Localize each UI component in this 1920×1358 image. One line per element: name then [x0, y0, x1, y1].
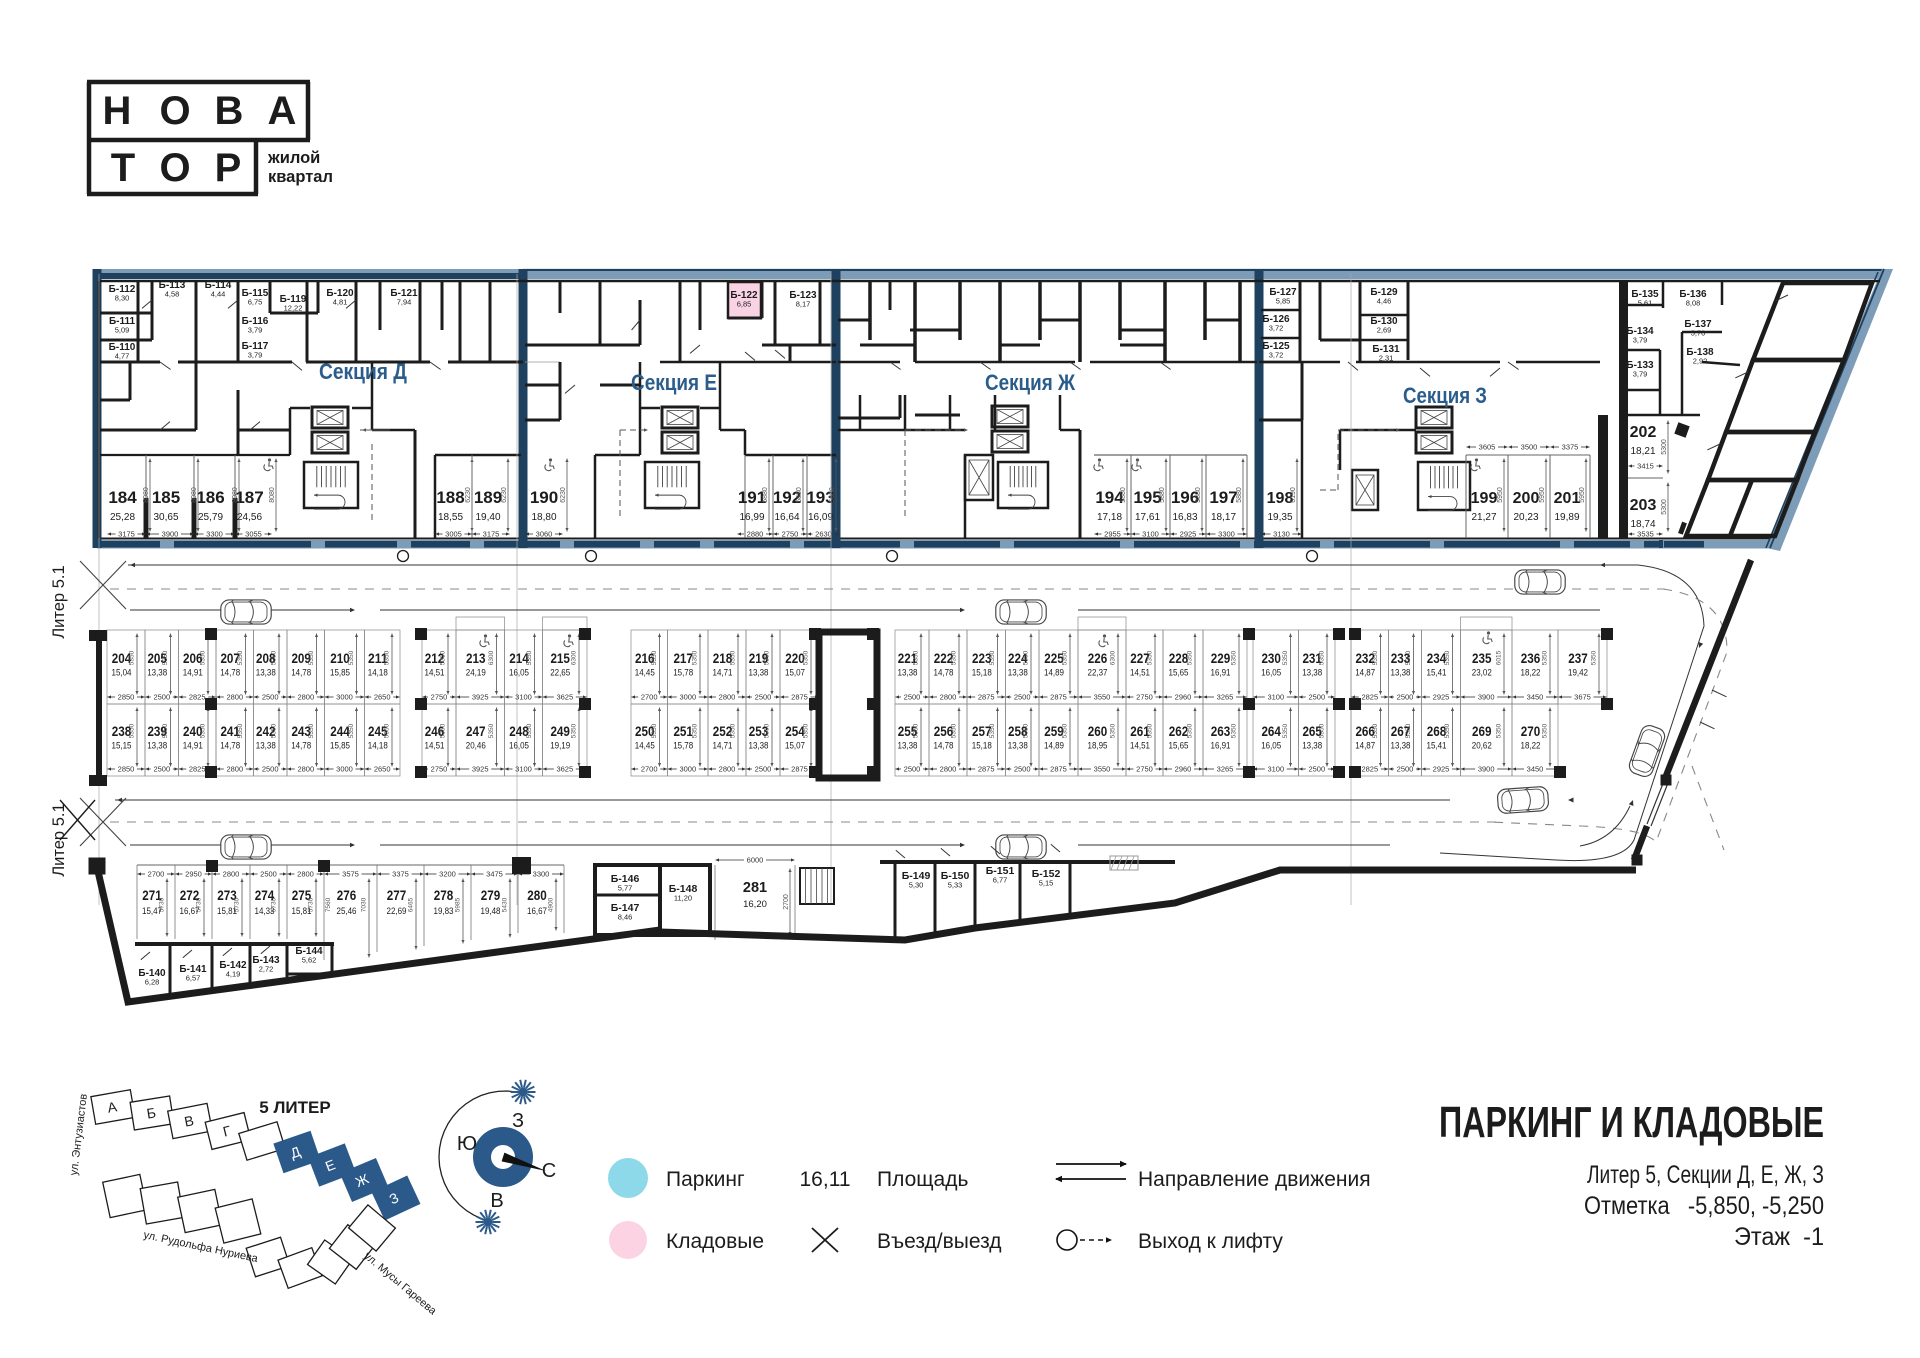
svg-text:14,18: 14,18: [368, 741, 388, 751]
svg-text:13,38: 13,38: [898, 668, 918, 678]
svg-text:14,91: 14,91: [183, 741, 203, 751]
svg-text:5350: 5350: [989, 723, 996, 738]
svg-text:2500: 2500: [1014, 693, 1031, 702]
svg-text:2500: 2500: [262, 765, 279, 774]
svg-text:3605: 3605: [1479, 443, 1496, 452]
svg-text:5350: 5350: [384, 650, 391, 665]
svg-text:5350: 5350: [237, 650, 244, 665]
svg-text:2650: 2650: [374, 765, 391, 774]
svg-text:2700: 2700: [783, 894, 790, 910]
svg-text:6465: 6465: [408, 897, 415, 912]
svg-text:6190: 6190: [1290, 487, 1297, 503]
svg-text:Направление движения: Направление движения: [1138, 1168, 1371, 1191]
svg-text:8,17: 8,17: [796, 300, 811, 309]
svg-text:2700: 2700: [641, 693, 658, 702]
svg-text:5350: 5350: [1231, 650, 1238, 665]
svg-text:5350: 5350: [730, 723, 737, 738]
svg-text:4900: 4900: [548, 897, 555, 912]
svg-text:6,28: 6,28: [145, 978, 160, 987]
svg-text:185: 185: [152, 488, 180, 507]
svg-text:3100: 3100: [1142, 530, 1159, 539]
svg-text:264: 264: [1261, 724, 1281, 739]
svg-text:3130: 3130: [1273, 530, 1290, 539]
svg-text:3100: 3100: [1267, 693, 1284, 702]
svg-text:5350: 5350: [1062, 723, 1069, 738]
svg-text:14,71: 14,71: [713, 741, 733, 751]
svg-text:5350: 5350: [1282, 723, 1289, 738]
svg-text:5350: 5350: [271, 650, 278, 665]
svg-text:217: 217: [673, 651, 693, 666]
svg-text:260: 260: [1088, 724, 1108, 739]
svg-text:19,19: 19,19: [550, 741, 570, 751]
svg-text:16,91: 16,91: [1211, 741, 1231, 751]
svg-text:5950: 5950: [1539, 487, 1546, 503]
svg-text:14,51: 14,51: [425, 668, 445, 678]
svg-text:2825: 2825: [189, 693, 206, 702]
svg-text:2800: 2800: [719, 693, 736, 702]
svg-text:16,11: 16,11: [800, 1168, 851, 1191]
svg-text:2750: 2750: [431, 693, 448, 702]
svg-text:13,38: 13,38: [749, 668, 769, 678]
svg-text:269: 269: [1472, 724, 1492, 739]
svg-text:14,51: 14,51: [1130, 668, 1150, 678]
svg-text:3375: 3375: [1562, 443, 1579, 452]
svg-text:5 ЛИТЕР: 5 ЛИТЕР: [259, 1098, 330, 1117]
svg-text:19,35: 19,35: [1267, 512, 1292, 523]
svg-text:18,21: 18,21: [1630, 446, 1655, 457]
svg-text:2,92: 2,92: [1693, 357, 1708, 366]
svg-text:5350: 5350: [348, 723, 355, 738]
svg-text:5430: 5430: [502, 897, 509, 912]
svg-text:5350: 5350: [1023, 723, 1030, 738]
svg-text:5350: 5350: [200, 650, 207, 665]
svg-text:19,48: 19,48: [481, 906, 501, 916]
svg-text:201: 201: [1554, 490, 1581, 507]
svg-text:жилой: жилой: [267, 149, 320, 167]
svg-text:2925: 2925: [1433, 765, 1450, 774]
svg-text:13,38: 13,38: [147, 741, 167, 751]
svg-text:2750: 2750: [1136, 765, 1153, 774]
svg-text:3055: 3055: [245, 530, 262, 539]
svg-text:3375: 3375: [392, 870, 409, 879]
svg-text:2960: 2960: [1175, 765, 1192, 774]
svg-text:247: 247: [466, 724, 486, 739]
svg-text:25,79: 25,79: [198, 512, 223, 523]
svg-text:5350: 5350: [271, 723, 278, 738]
svg-text:251: 251: [673, 724, 693, 739]
svg-text:18,74: 18,74: [1630, 519, 1655, 530]
svg-text:2875: 2875: [1050, 765, 1067, 774]
svg-text:3060: 3060: [536, 530, 553, 539]
svg-text:189: 189: [474, 488, 502, 507]
svg-text:15,85: 15,85: [330, 668, 350, 678]
svg-text:2500: 2500: [904, 693, 921, 702]
svg-text:С: С: [542, 1160, 556, 1182]
svg-text:2750: 2750: [782, 530, 799, 539]
svg-text:3900: 3900: [1478, 765, 1495, 774]
svg-text:20,62: 20,62: [1472, 741, 1492, 751]
svg-text:5350: 5350: [1405, 723, 1412, 738]
svg-text:270: 270: [1521, 724, 1541, 739]
svg-text:5350: 5350: [1147, 723, 1154, 738]
svg-text:5350: 5350: [1062, 650, 1069, 665]
svg-text:3415: 3415: [1637, 462, 1654, 471]
svg-text:3000: 3000: [336, 765, 353, 774]
svg-text:25,46: 25,46: [337, 906, 357, 916]
svg-text:21,27: 21,27: [1471, 512, 1496, 523]
svg-text:5950: 5950: [1497, 487, 1504, 503]
svg-text:5350: 5350: [1231, 723, 1238, 738]
svg-text:3900: 3900: [162, 530, 179, 539]
svg-text:8080: 8080: [191, 487, 198, 503]
svg-text:5,85: 5,85: [1276, 297, 1291, 306]
svg-text:5350: 5350: [764, 723, 771, 738]
svg-text:5350: 5350: [1444, 650, 1451, 665]
svg-text:5350: 5350: [989, 650, 996, 665]
svg-text:5350: 5350: [237, 723, 244, 738]
svg-text:5350: 5350: [951, 723, 958, 738]
svg-text:2,72: 2,72: [259, 965, 274, 974]
svg-text:2750: 2750: [431, 765, 448, 774]
svg-text:2500: 2500: [1014, 765, 1031, 774]
svg-text:20,46: 20,46: [466, 741, 486, 751]
svg-text:5880: 5880: [1120, 487, 1127, 503]
svg-text:3300: 3300: [1218, 530, 1235, 539]
svg-text:14,78: 14,78: [934, 668, 954, 678]
svg-text:5350: 5350: [803, 723, 810, 738]
svg-text:14,78: 14,78: [291, 668, 311, 678]
svg-text:237: 237: [1568, 651, 1588, 666]
svg-text:5350: 5350: [1444, 723, 1451, 738]
svg-text:5,70: 5,70: [1691, 329, 1706, 338]
svg-text:5350: 5350: [1542, 650, 1549, 665]
svg-text:2955: 2955: [1104, 530, 1121, 539]
svg-text:184: 184: [108, 488, 137, 507]
svg-text:14,89: 14,89: [1044, 741, 1064, 751]
svg-text:3265: 3265: [1217, 693, 1234, 702]
svg-text:3175: 3175: [118, 530, 135, 539]
svg-text:2825: 2825: [189, 765, 206, 774]
svg-text:5350: 5350: [162, 723, 169, 738]
svg-text:15,15: 15,15: [112, 741, 132, 751]
svg-text:19,83: 19,83: [434, 906, 454, 916]
svg-text:18,17: 18,17: [1211, 512, 1236, 523]
svg-text:5350: 5350: [913, 723, 920, 738]
svg-text:квартал: квартал: [268, 168, 333, 186]
svg-text:5,15: 5,15: [1039, 879, 1054, 888]
svg-text:13,38: 13,38: [1008, 668, 1028, 678]
svg-text:24,19: 24,19: [466, 668, 486, 678]
svg-text:3,79: 3,79: [248, 351, 263, 360]
svg-text:7,94: 7,94: [397, 298, 412, 307]
svg-text:2500: 2500: [262, 693, 279, 702]
svg-text:15,18: 15,18: [972, 741, 992, 751]
svg-text:195: 195: [1133, 488, 1161, 507]
svg-text:2850: 2850: [118, 693, 135, 702]
svg-text:188: 188: [436, 488, 464, 507]
svg-text:В: В: [490, 1190, 503, 1212]
svg-text:3265: 3265: [1217, 765, 1234, 774]
svg-text:Отметка -5,850, -5,250: Отметка -5,850, -5,250: [1584, 1192, 1824, 1220]
svg-text:13,38: 13,38: [1008, 741, 1028, 751]
svg-text:2800: 2800: [297, 765, 314, 774]
svg-text:3300: 3300: [206, 530, 223, 539]
svg-text:2875: 2875: [978, 765, 995, 774]
svg-text:236: 236: [1521, 651, 1541, 666]
svg-text:13,38: 13,38: [749, 741, 769, 751]
svg-text:5350: 5350: [651, 650, 658, 665]
svg-text:5350: 5350: [1187, 650, 1194, 665]
svg-text:Литер 5.1: Литер 5.1: [50, 803, 68, 876]
svg-text:8,08: 8,08: [1686, 299, 1701, 308]
svg-text:2500: 2500: [1308, 693, 1325, 702]
svg-text:2800: 2800: [719, 765, 736, 774]
svg-text:5,61: 5,61: [1638, 299, 1653, 308]
svg-text:3100: 3100: [515, 693, 532, 702]
svg-text:3475: 3475: [486, 870, 503, 879]
svg-text:278: 278: [434, 888, 454, 903]
svg-text:13,38: 13,38: [1302, 668, 1322, 678]
svg-text:277: 277: [387, 888, 407, 903]
svg-text:5350: 5350: [1023, 650, 1030, 665]
svg-text:19,89: 19,89: [1554, 512, 1579, 523]
svg-text:5880: 5880: [1159, 487, 1166, 503]
svg-text:2925: 2925: [1433, 693, 1450, 702]
svg-text:13,38: 13,38: [256, 741, 276, 751]
svg-text:2825: 2825: [1361, 765, 1378, 774]
svg-text:2700: 2700: [641, 765, 658, 774]
svg-text:3,72: 3,72: [1269, 351, 1284, 360]
svg-text:Въезд/выезд: Въезд/выезд: [877, 1230, 1002, 1253]
svg-text:16,09: 16,09: [808, 512, 833, 523]
svg-text:5730: 5730: [234, 897, 241, 912]
svg-text:3,79: 3,79: [248, 326, 263, 335]
svg-text:5,62: 5,62: [302, 956, 317, 965]
svg-text:3000: 3000: [336, 693, 353, 702]
svg-text:5350: 5350: [1110, 723, 1117, 738]
svg-text:О: О: [159, 89, 190, 133]
svg-text:5350: 5350: [348, 650, 355, 665]
svg-text:15,65: 15,65: [1169, 741, 1189, 751]
svg-text:22,69: 22,69: [387, 906, 407, 916]
svg-text:14,78: 14,78: [220, 668, 240, 678]
svg-text:5730: 5730: [308, 897, 315, 912]
svg-text:5350: 5350: [162, 650, 169, 665]
svg-text:5,09: 5,09: [115, 326, 130, 335]
svg-text:5300: 5300: [1661, 439, 1668, 455]
svg-text:200: 200: [1513, 490, 1540, 507]
svg-text:3100: 3100: [1267, 765, 1284, 774]
svg-text:15,41: 15,41: [1427, 741, 1447, 751]
svg-text:16,83: 16,83: [1172, 512, 1197, 523]
svg-text:5350: 5350: [200, 723, 207, 738]
svg-text:5730: 5730: [196, 897, 203, 912]
svg-text:213: 213: [466, 651, 486, 666]
svg-text:3625: 3625: [556, 693, 573, 702]
svg-text:3535: 3535: [1637, 530, 1654, 539]
svg-text:230: 230: [1261, 651, 1281, 666]
svg-text:30,65: 30,65: [153, 512, 178, 523]
svg-text:Литер 5.1: Литер 5.1: [50, 565, 68, 638]
svg-text:13,38: 13,38: [898, 741, 918, 751]
svg-text:13,38: 13,38: [1302, 741, 1322, 751]
svg-text:15,78: 15,78: [673, 741, 693, 751]
svg-text:5350: 5350: [1542, 723, 1549, 738]
svg-text:2800: 2800: [226, 693, 243, 702]
svg-text:2825: 2825: [1361, 693, 1378, 702]
svg-text:6230: 6230: [465, 487, 472, 503]
svg-text:2800: 2800: [226, 765, 243, 774]
svg-text:5350: 5350: [1319, 723, 1326, 738]
svg-text:2500: 2500: [1308, 765, 1325, 774]
svg-text:19,42: 19,42: [1568, 668, 1588, 678]
svg-text:5350: 5350: [913, 650, 920, 665]
svg-text:16,91: 16,91: [1211, 668, 1231, 678]
svg-text:197: 197: [1209, 488, 1237, 507]
svg-text:14,78: 14,78: [934, 741, 954, 751]
svg-text:2750: 2750: [1136, 693, 1153, 702]
svg-text:22,65: 22,65: [550, 668, 570, 678]
svg-text:6300: 6300: [488, 650, 495, 665]
svg-text:Н: Н: [103, 89, 132, 133]
svg-text:276: 276: [337, 888, 357, 903]
svg-text:5350: 5350: [129, 723, 136, 738]
svg-text:14,89: 14,89: [1044, 668, 1064, 678]
svg-text:14,87: 14,87: [1355, 741, 1375, 751]
svg-text:15,07: 15,07: [785, 741, 805, 751]
svg-text:5,30: 5,30: [909, 881, 924, 890]
svg-text:17,18: 17,18: [1097, 512, 1122, 523]
svg-text:3005: 3005: [445, 530, 462, 539]
svg-text:5350: 5350: [440, 723, 447, 738]
svg-text:14,51: 14,51: [1130, 741, 1150, 751]
svg-text:2800: 2800: [223, 870, 240, 879]
svg-text:8,46: 8,46: [618, 913, 633, 922]
svg-text:5880: 5880: [829, 487, 836, 503]
svg-text:202: 202: [1630, 424, 1657, 441]
svg-text:14,18: 14,18: [368, 668, 388, 678]
svg-text:19,40: 19,40: [475, 512, 500, 523]
svg-text:6230: 6230: [560, 487, 567, 503]
svg-text:18,22: 18,22: [1521, 741, 1541, 751]
svg-text:Ю: Ю: [457, 1133, 477, 1155]
svg-text:16,67: 16,67: [527, 906, 547, 916]
svg-text:11,20: 11,20: [674, 894, 692, 903]
svg-text:Секция Ж: Секция Ж: [985, 370, 1075, 395]
svg-text:12,22: 12,22: [284, 304, 303, 313]
svg-text:5350: 5350: [526, 650, 533, 665]
svg-text:5730: 5730: [271, 897, 278, 912]
svg-text:5350: 5350: [1147, 650, 1154, 665]
svg-text:187: 187: [235, 488, 263, 507]
svg-text:5350: 5350: [692, 723, 699, 738]
svg-text:5880: 5880: [1195, 487, 1202, 503]
svg-text:5350: 5350: [951, 650, 958, 665]
svg-text:5880: 5880: [796, 487, 803, 503]
svg-text:2875: 2875: [791, 765, 808, 774]
svg-text:5300: 5300: [1661, 499, 1668, 515]
svg-text:2500: 2500: [755, 693, 772, 702]
svg-text:3575: 3575: [342, 870, 359, 879]
svg-text:З: З: [512, 1110, 524, 1132]
svg-text:3675: 3675: [1574, 693, 1591, 702]
svg-text:16,05: 16,05: [1261, 741, 1281, 751]
svg-text:262: 262: [1169, 724, 1189, 739]
svg-text:16,05: 16,05: [509, 668, 529, 678]
svg-text:210: 210: [330, 651, 350, 666]
svg-text:5350: 5350: [571, 723, 578, 738]
svg-text:5350: 5350: [129, 650, 136, 665]
svg-text:7560: 7560: [325, 897, 332, 912]
svg-text:5350: 5350: [1372, 650, 1379, 665]
svg-text:17,61: 17,61: [1135, 512, 1160, 523]
svg-text:4,58: 4,58: [165, 290, 180, 299]
svg-text:А: А: [268, 89, 297, 133]
svg-text:В: В: [215, 89, 244, 133]
svg-text:6,85: 6,85: [737, 300, 752, 309]
svg-text:2800: 2800: [940, 765, 957, 774]
svg-text:13,38: 13,38: [1391, 741, 1411, 751]
svg-text:16,99: 16,99: [739, 512, 764, 523]
svg-text:6015: 6015: [1496, 650, 1503, 665]
svg-text:235: 235: [1472, 651, 1492, 666]
svg-text:6230: 6230: [501, 487, 508, 503]
svg-text:5350: 5350: [730, 650, 737, 665]
svg-text:14,45: 14,45: [635, 741, 655, 751]
svg-text:6300: 6300: [1110, 650, 1117, 665]
svg-text:5350: 5350: [440, 650, 447, 665]
svg-text:5350: 5350: [803, 650, 810, 665]
svg-text:Этаж -1: Этаж -1: [1734, 1223, 1824, 1251]
svg-text:5350: 5350: [384, 723, 391, 738]
svg-text:5350: 5350: [764, 650, 771, 665]
svg-text:3500: 3500: [1521, 443, 1538, 452]
svg-text:Секция Д: Секция Д: [319, 359, 407, 384]
svg-text:5350: 5350: [1282, 650, 1289, 665]
svg-text:5880: 5880: [1236, 487, 1243, 503]
svg-text:249: 249: [550, 724, 570, 739]
svg-text:18,22: 18,22: [1521, 668, 1541, 678]
svg-text:5350: 5350: [308, 650, 315, 665]
svg-text:3925: 3925: [472, 765, 489, 774]
svg-text:18,55: 18,55: [438, 512, 463, 523]
svg-text:5350: 5350: [1496, 723, 1503, 738]
svg-text:2500: 2500: [1397, 693, 1414, 702]
svg-text:5350: 5350: [651, 723, 658, 738]
svg-text:3100: 3100: [515, 765, 532, 774]
svg-text:3625: 3625: [556, 765, 573, 774]
svg-text:4,81: 4,81: [333, 298, 348, 307]
svg-text:7030: 7030: [361, 897, 368, 912]
svg-text:2650: 2650: [374, 693, 391, 702]
svg-text:22,37: 22,37: [1088, 668, 1108, 678]
svg-text:226: 226: [1088, 651, 1108, 666]
svg-text:14,87: 14,87: [1355, 668, 1375, 678]
svg-text:2500: 2500: [1397, 765, 1414, 774]
svg-text:8080: 8080: [232, 487, 239, 503]
svg-text:3,72: 3,72: [1269, 324, 1284, 333]
svg-text:3925: 3925: [472, 693, 489, 702]
svg-text:13,38: 13,38: [1391, 668, 1411, 678]
svg-text:5350: 5350: [692, 650, 699, 665]
svg-text:8080: 8080: [269, 487, 276, 503]
svg-text:2700: 2700: [148, 870, 165, 879]
svg-text:2500: 2500: [260, 870, 277, 879]
svg-text:3450: 3450: [1527, 693, 1544, 702]
svg-text:16,05: 16,05: [1261, 668, 1281, 678]
svg-text:5350: 5350: [488, 723, 495, 738]
svg-text:5350: 5350: [1405, 650, 1412, 665]
